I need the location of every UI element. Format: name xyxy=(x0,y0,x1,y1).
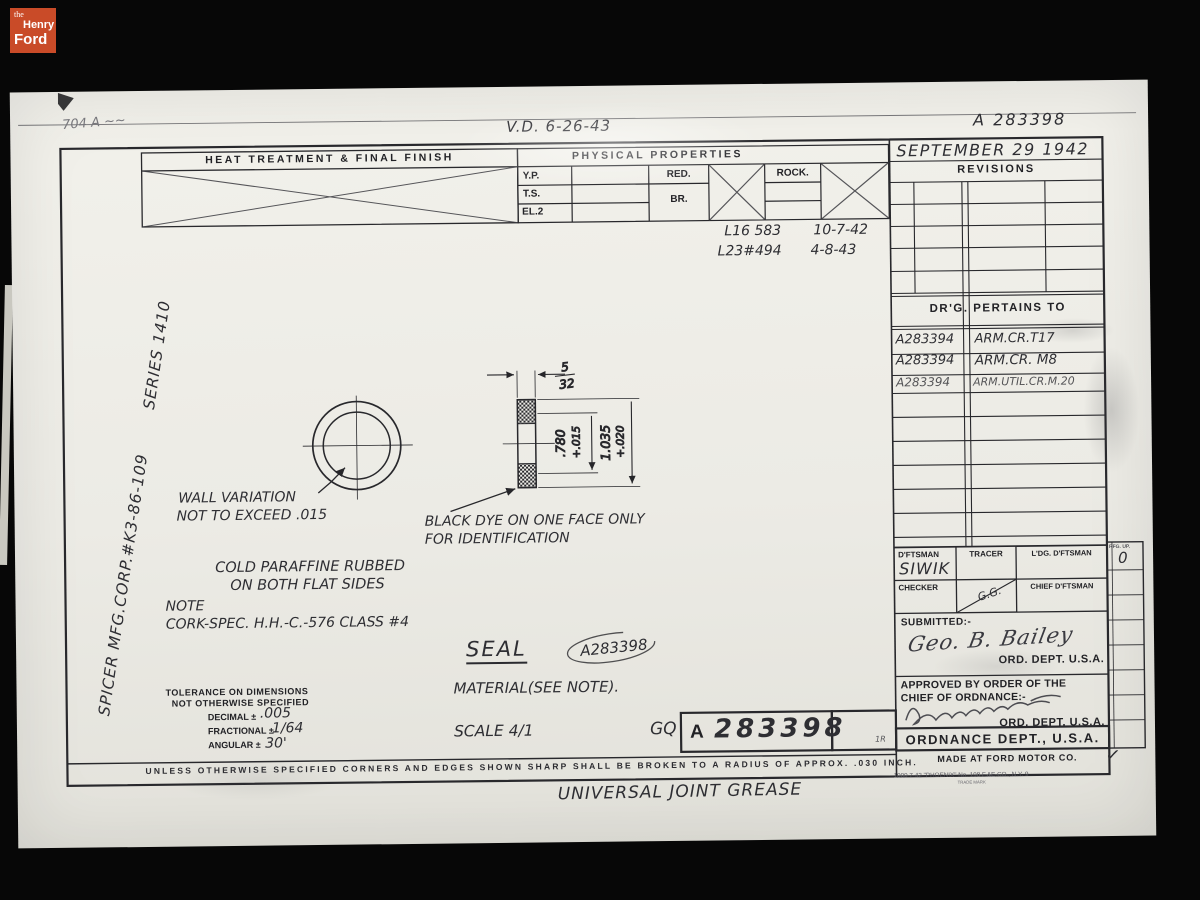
approved-line-2: CHIEF OF ORDNANCE:- xyxy=(901,691,1026,704)
approved-line-1: APPROVED BY ORDER OF THE xyxy=(900,678,1066,692)
dim-id-tolerance: +.015 xyxy=(571,426,583,459)
label-el: EL.2 xyxy=(522,206,543,217)
tolerance-angular-value: 30' xyxy=(265,735,287,751)
ring-view xyxy=(302,395,413,500)
black-dye-note-2: FOR IDENTIFICATION xyxy=(425,530,570,548)
label-rock: ROCK. xyxy=(763,167,823,179)
revision-entry-date: 4-8-43 xyxy=(811,242,857,259)
tolerance-decimal-label: DECIMAL ± xyxy=(208,712,256,723)
part-name: SEAL xyxy=(466,637,527,665)
label-yp: Y.P. xyxy=(523,170,540,181)
wall-variation-note-1: WALL VARIATION xyxy=(178,489,296,506)
number-box-value: 283398 xyxy=(714,713,847,745)
dftsman-label: D'FTSMAN xyxy=(898,550,939,559)
ord-dept-label: ORD. DEPT. U.S.A. xyxy=(976,653,1104,666)
label-ts: T.S. xyxy=(523,188,540,199)
ldg-dftsman-label: L'DG. D'FTSMAN xyxy=(1016,548,1107,558)
label-red: RED. xyxy=(649,169,709,181)
check-mark: ✓ xyxy=(1104,744,1122,767)
made-at-label: MADE AT FORD MOTOR CO. xyxy=(937,752,1077,764)
strip-value: 0 xyxy=(1118,549,1128,567)
dftsman-name: SIWIK xyxy=(899,559,950,579)
tracer-label: TRACER xyxy=(956,549,1016,559)
henry-ford-logo: the Henry Ford xyxy=(10,8,56,53)
dim-id-value: .780 xyxy=(553,429,568,457)
checker-label: CHECKER xyxy=(898,583,938,592)
pertains-title: DR'G. PERTAINS TO xyxy=(891,301,1104,315)
logo-ford: Ford xyxy=(14,31,47,48)
scan-background: the Henry Ford xyxy=(0,0,1200,900)
dim-width-denominator: 32 xyxy=(559,376,576,392)
logo-henry: Henry xyxy=(23,19,54,31)
date-field: SEPTEMBER 29 1942 xyxy=(896,139,1089,160)
drawing-number-top: A 283398 xyxy=(973,109,1066,129)
trademark-note: TRADE MARK xyxy=(958,779,986,784)
tolerance-line-1: TOLERANCE ON DIMENSIONS xyxy=(166,686,309,698)
dim-od-value: 1.035 xyxy=(598,425,613,461)
number-box-prefix: A xyxy=(690,722,704,744)
chief-dftsman-label: CHIEF D'FTSMAN xyxy=(1016,581,1107,591)
inspector-initials: GQ xyxy=(650,719,677,739)
revision-entry-ref: L16 583 xyxy=(724,223,781,240)
pertains-row-app: ARM.CR.T17 xyxy=(975,331,1055,347)
revision-entry-ref: L23#494 xyxy=(718,243,782,260)
dim-width-numerator: 5 xyxy=(560,360,569,375)
submitted-label: SUBMITTED:- xyxy=(901,617,972,629)
tolerance-fractional-label: FRACTIONAL ± xyxy=(208,726,274,737)
cork-spec-note: CORK-SPEC. H.H.-C.-576 CLASS #4 xyxy=(166,614,409,633)
number-box-mark: 1R xyxy=(875,735,886,744)
paraffine-note-2: ON BOTH FLAT SIDES xyxy=(230,576,385,594)
label-br: BR. xyxy=(649,194,709,206)
drawing-sheet: 5 32 .780 +.015 1.035 +.020 xyxy=(10,80,1157,849)
pertains-row-no: A283394 xyxy=(896,375,950,390)
black-dye-note-1: BLACK DYE ON ONE FACE ONLY xyxy=(425,511,645,529)
ordnance-dept-label: ORDNANCE DEPT., U.S.A. xyxy=(896,730,1109,747)
pertains-row-app: ARM.UTIL.CR.M.20 xyxy=(973,374,1075,388)
material-note: MATERIAL(SEE NOTE). xyxy=(453,678,619,698)
tolerance-decimal-value: .005 xyxy=(260,705,291,721)
logo-the: the xyxy=(14,10,24,19)
scale-note: SCALE 4/1 xyxy=(454,722,534,741)
tolerance-fractional-value: 1/64 xyxy=(272,720,304,736)
tolerance-angular-label: ANGULAR ± xyxy=(208,740,261,751)
pertains-row-no: A283394 xyxy=(896,332,955,348)
vd-date-note: V.D. 6-26-43 xyxy=(506,117,611,136)
section-view: 5 32 .780 +.015 1.035 +.020 xyxy=(449,358,641,511)
pertains-row-no: A283394 xyxy=(896,353,955,369)
note-label: NOTE xyxy=(166,598,205,614)
wall-variation-note-2: NOT TO EXCEED .015 xyxy=(176,507,327,525)
revision-entry-date: 10-7-42 xyxy=(813,222,868,239)
paraffine-note-1: COLD PARAFFINE RUBBED xyxy=(215,558,405,576)
revisions-title: REVISIONS xyxy=(890,162,1103,176)
page-edge-sliver xyxy=(0,285,13,565)
pertains-row-app: ARM.CR. M8 xyxy=(975,352,1057,369)
ord-dept-label: ORD. DEPT. U.S.A. xyxy=(967,716,1105,730)
dim-od-tolerance: +.020 xyxy=(615,425,627,458)
